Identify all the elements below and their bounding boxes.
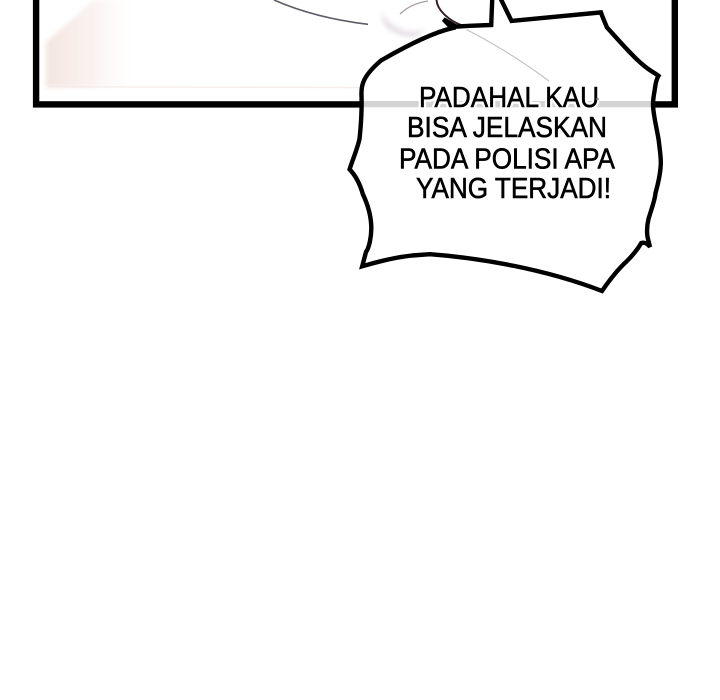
svg-text:PADA POLISI APA: PADA POLISI APA [399,144,616,176]
svg-text:BISA JELASKAN: BISA JELASKAN [407,112,607,144]
svg-text:YANG TERJADI!: YANG TERJADI! [416,173,611,205]
svg-text:PADAHAL KAU: PADAHAL KAU [419,82,599,114]
